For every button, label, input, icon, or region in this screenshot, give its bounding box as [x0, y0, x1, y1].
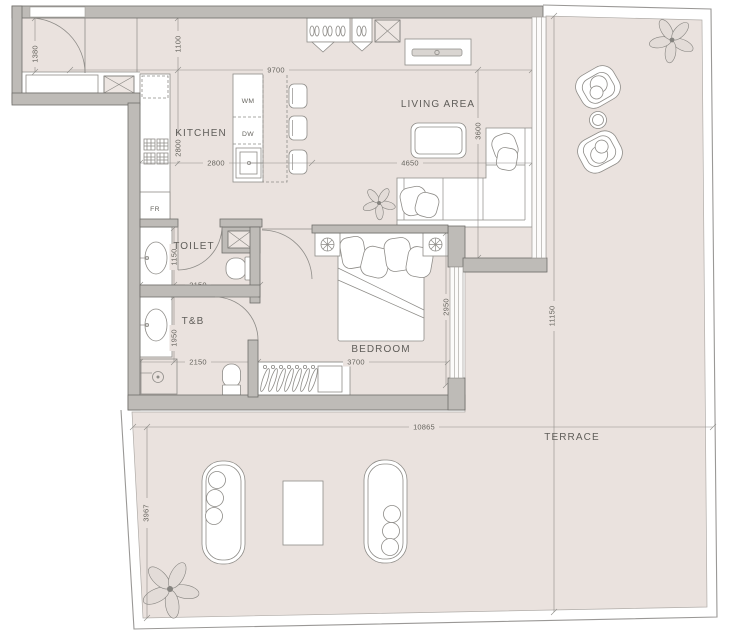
floor-plan-drawing: FR WM DW — [0, 0, 734, 640]
west-wall — [128, 103, 140, 410]
dim-kitchen-width: 2800 — [207, 159, 225, 168]
dishwasher-label: DW — [242, 131, 254, 138]
tb-label: T&B — [182, 316, 205, 327]
tv-console — [405, 39, 471, 65]
kitchen-label: KITCHEN — [175, 128, 227, 139]
terrace-side-table — [590, 112, 607, 129]
bar-stools — [289, 84, 307, 174]
toilet-vanity — [140, 227, 172, 289]
bedroom-window — [450, 267, 463, 378]
tb-wc — [223, 364, 241, 395]
dim-living-depth: 3600 — [474, 122, 483, 140]
bedroom-east-wall-bottom — [448, 378, 465, 410]
sun-lounger-left — [202, 461, 245, 564]
living-area-label: LIVING AREA — [401, 99, 475, 110]
living-ext-floor — [463, 225, 532, 258]
dim-tb-width: 2150 — [189, 358, 207, 367]
dim-terrace-left: 3967 — [142, 504, 151, 522]
terrace-table — [283, 481, 323, 545]
living-glass-wall — [532, 17, 546, 258]
bedroom-north-wall — [312, 225, 448, 233]
dim-entry: 1380 — [31, 45, 40, 63]
dim-bedroom-width: 3700 — [347, 358, 365, 367]
dim-terrace-depth: 11150 — [548, 306, 557, 327]
dim-bedroom-depth: 2950 — [442, 298, 451, 316]
kitchen-counter: FR — [140, 74, 170, 222]
entry-shaft — [104, 76, 134, 93]
toilet-tb-divider — [140, 285, 260, 297]
sofa-cushion — [495, 146, 519, 171]
toilet-label: TOILET — [173, 241, 214, 252]
sun-lounger-right — [364, 460, 407, 563]
north-wall — [12, 6, 543, 18]
terrace-label: TERRACE — [544, 432, 599, 443]
living-step-wall — [463, 258, 547, 272]
dim-terrace-width: 10865 — [413, 423, 435, 432]
bed — [338, 233, 434, 341]
bedroom-east-wall-top — [448, 226, 465, 267]
toilet-wc — [226, 257, 253, 280]
toilet-north-wall-a — [140, 219, 178, 227]
wardrobe — [258, 362, 350, 396]
entry-floor — [22, 18, 140, 72]
top-shaft — [375, 20, 400, 42]
toilet-north-wall-b — [220, 219, 262, 227]
entry-door-opening — [30, 7, 85, 17]
tb-vanity — [140, 293, 172, 357]
entry-south-wall — [12, 93, 140, 105]
dim-overall: 9700 — [267, 66, 285, 75]
dim-top: 1100 — [174, 36, 183, 53]
nightstand-right — [423, 233, 448, 256]
washing-machine-label: WM — [242, 98, 255, 105]
entry-west-wall — [12, 6, 22, 103]
nightstand-left — [315, 233, 340, 256]
coffee-table — [411, 123, 466, 158]
south-wall — [128, 395, 465, 410]
tb-east-wall — [248, 340, 258, 397]
dim-kitchen-depth: 2800 — [174, 139, 183, 157]
floor-plan: FR WM DW — [0, 0, 734, 640]
dim-tb-depth: 1950 — [170, 329, 179, 347]
entry-closet — [26, 75, 98, 93]
dim-living-width: 4650 — [401, 159, 419, 168]
fridge-label: FR — [150, 206, 160, 213]
bedroom-label: BEDROOM — [351, 344, 410, 355]
